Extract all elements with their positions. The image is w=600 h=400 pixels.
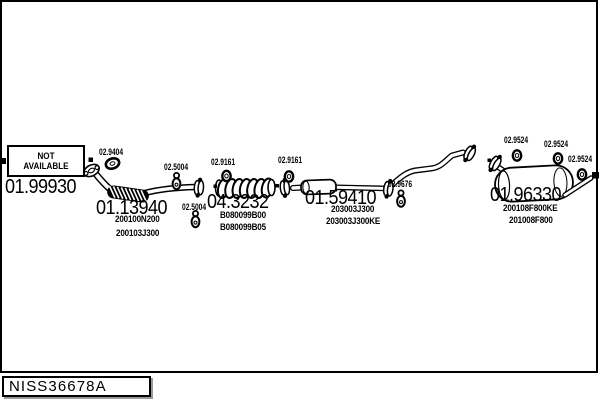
part-code-accessory: 02.9524 — [568, 155, 592, 164]
part-code-accessory: 02.9161 — [211, 158, 235, 167]
rubber-hanger-icon — [513, 150, 521, 160]
oem-reference-code: B080099B05 — [220, 223, 266, 233]
oem-reference-code: 200108F800KE — [503, 204, 558, 214]
part-code-accessory: 02.9524 — [544, 140, 568, 149]
rubber-hanger-icon — [397, 190, 405, 206]
oem-reference-code: 201008F800 — [509, 216, 553, 226]
drawing-code-box: NISS36678A — [2, 376, 151, 397]
part-code-accessory: 02.9676 — [388, 180, 412, 189]
oem-reference-code: 200103J300 — [116, 229, 159, 239]
rubber-hanger-icon — [578, 169, 586, 179]
part-code-accessory: 02.9404 — [99, 148, 123, 157]
oem-reference-code: B080099B00 — [220, 211, 266, 221]
part-code-accessory: 02.9524 — [504, 136, 528, 145]
oem-reference-code: 203003J300KE — [326, 217, 380, 227]
flange-icon — [194, 177, 205, 198]
joint-dot — [89, 158, 94, 163]
not-available-box: NOT AVAILABLE — [7, 145, 85, 177]
part-code-main: 01.99930 — [5, 177, 76, 198]
part-code-accessory: 02.5004 — [182, 203, 206, 212]
inlet-end-marker — [0, 158, 6, 164]
drawing-code: NISS36678A — [4, 378, 107, 395]
joint-dot — [276, 184, 280, 188]
front-downpipe — [95, 173, 111, 190]
rubber-hanger-icon — [173, 173, 181, 189]
rubber-hanger-icon — [285, 171, 293, 181]
gasket-ring-icon — [104, 157, 120, 171]
front-pipe — [145, 187, 195, 193]
oem-reference-code: 203003J300 — [331, 205, 374, 215]
joint-dot — [214, 185, 218, 189]
rubber-hanger-icon — [222, 171, 230, 181]
part-code-accessory: 02.9161 — [278, 156, 302, 165]
tailpipe-end-marker — [592, 172, 599, 179]
exhaust-parts-diagram: NOT AVAILABLE 01.9993001.1394004.323201.… — [0, 0, 600, 400]
rubber-hanger-icon — [192, 211, 200, 227]
oem-reference-code: 200100N200 — [115, 215, 160, 225]
not-available-text: NOT AVAILABLE — [20, 151, 72, 171]
rubber-hanger-icon — [554, 153, 562, 163]
part-code-accessory: 02.5004 — [164, 163, 188, 172]
